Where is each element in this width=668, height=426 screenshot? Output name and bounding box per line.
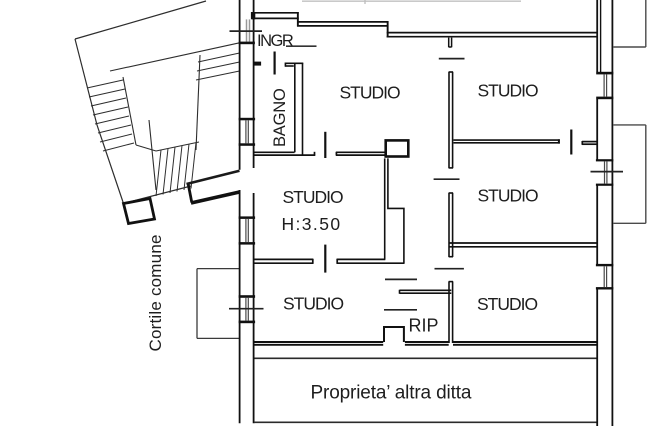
svg-text:STUDIO: STUDIO — [283, 294, 344, 314]
svg-text:STUDIO: STUDIO — [477, 294, 538, 314]
svg-text:RIP: RIP — [409, 316, 439, 336]
svg-text:STUDIO: STUDIO — [283, 187, 344, 207]
svg-text:STUDIO: STUDIO — [478, 81, 539, 101]
svg-text:BAGNO: BAGNO — [271, 88, 289, 147]
svg-text:Cortile comune: Cortile comune — [146, 234, 165, 351]
svg-text:Proprieta’ altra ditta: Proprieta’ altra ditta — [311, 382, 472, 403]
svg-text:INGR: INGR — [257, 32, 294, 50]
svg-text:STUDIO: STUDIO — [340, 82, 401, 102]
svg-text:STUDIO: STUDIO — [478, 186, 539, 206]
svg-text:H:3.50: H:3.50 — [282, 214, 342, 234]
